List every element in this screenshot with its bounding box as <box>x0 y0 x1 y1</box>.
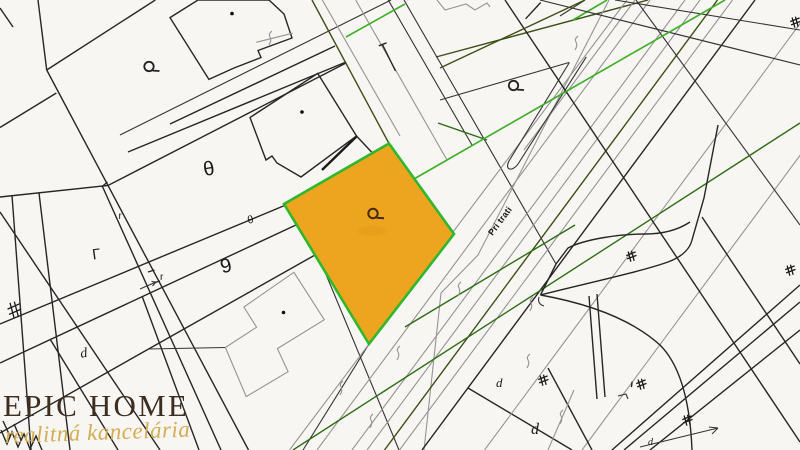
svg-text:d: d <box>496 375 503 390</box>
svg-text:d: d <box>531 421 540 438</box>
